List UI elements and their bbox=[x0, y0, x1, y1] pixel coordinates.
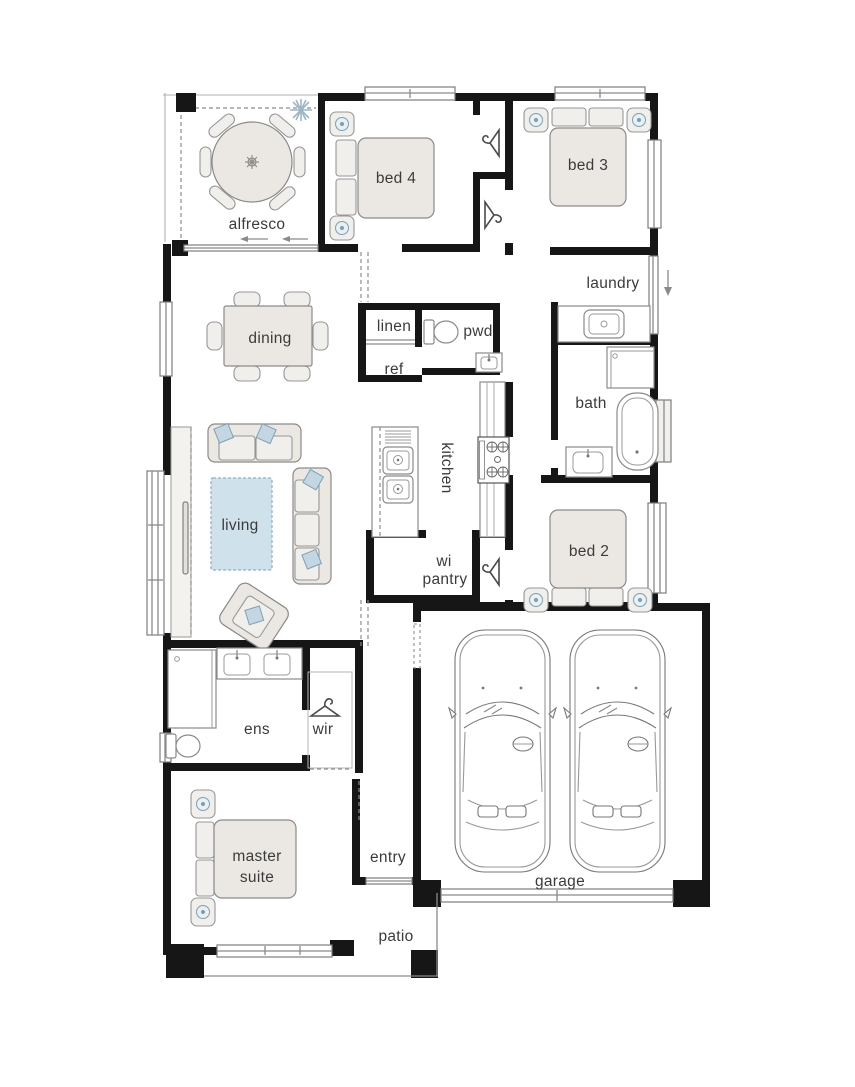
label-entry: entry bbox=[370, 849, 406, 866]
window-bed3-right bbox=[648, 140, 661, 228]
garage-contents bbox=[449, 630, 671, 872]
label-pwd: pwd bbox=[463, 323, 492, 340]
outdoor-chair-icon bbox=[294, 147, 305, 177]
label-wir: wir bbox=[312, 721, 334, 738]
car-icon bbox=[449, 630, 556, 872]
label-bath: bath bbox=[575, 395, 606, 412]
hanger-icon bbox=[483, 130, 499, 156]
island-bench-icon bbox=[372, 427, 418, 537]
sofa-icon bbox=[208, 424, 301, 462]
toilet-icon bbox=[424, 320, 458, 344]
nightstand-icon bbox=[524, 588, 548, 612]
living-furniture bbox=[171, 424, 331, 652]
wir-shelf bbox=[308, 672, 352, 768]
entry-door bbox=[366, 878, 412, 884]
window-bed2-right bbox=[648, 503, 666, 593]
label-bed3: bed 3 bbox=[568, 157, 608, 174]
nightstand-icon bbox=[191, 898, 215, 926]
label-master-2: suite bbox=[240, 869, 274, 886]
label-patio: patio bbox=[378, 928, 413, 945]
nightstand-icon bbox=[524, 108, 548, 132]
label-ref: ref bbox=[385, 361, 404, 378]
label-garage: garage bbox=[535, 873, 585, 890]
tv-icon bbox=[183, 502, 188, 574]
toilet-icon bbox=[166, 734, 200, 758]
label-wi-pantry-2: pantry bbox=[423, 571, 468, 588]
label-laundry: laundry bbox=[587, 275, 640, 292]
garage-door bbox=[441, 889, 673, 902]
alfresco-furniture bbox=[200, 99, 312, 212]
hanger-icon bbox=[311, 699, 339, 716]
plant-icon bbox=[290, 99, 312, 121]
dining-chair-icon bbox=[234, 366, 260, 381]
label-ens: ens bbox=[244, 721, 270, 738]
ens-fixtures bbox=[166, 648, 302, 758]
bathtub-icon bbox=[617, 393, 658, 470]
linen-shelf bbox=[366, 340, 415, 344]
window-bed4-top bbox=[365, 87, 455, 100]
dining-chair-icon bbox=[207, 322, 222, 350]
nightstand-icon bbox=[191, 790, 215, 818]
label-living: living bbox=[221, 517, 258, 534]
tv-unit-icon bbox=[171, 427, 191, 637]
label-kitchen: kitchen bbox=[438, 442, 455, 493]
shower-icon bbox=[607, 347, 654, 388]
cooktop-icon bbox=[478, 437, 509, 483]
sink-icon bbox=[383, 476, 413, 503]
bath-fixtures bbox=[566, 347, 658, 477]
label-wi-pantry-1: wi bbox=[435, 553, 451, 570]
floor-plan: alfresco bed 4 bed 3 laundry dining line… bbox=[0, 0, 855, 1087]
dining-chair-icon bbox=[284, 366, 310, 381]
nightstand-icon bbox=[628, 588, 652, 612]
laundry-fixtures bbox=[558, 306, 650, 342]
sink-icon bbox=[383, 447, 413, 474]
sliding-door-laundry bbox=[649, 256, 672, 334]
shower-icon bbox=[168, 650, 216, 728]
floor-plan-svg: alfresco bed 4 bed 3 laundry dining line… bbox=[0, 0, 855, 1087]
label-linen: linen bbox=[377, 318, 411, 335]
nightstand-icon bbox=[330, 112, 354, 136]
garage-internal-door bbox=[414, 624, 420, 668]
window-dining-left bbox=[160, 302, 172, 376]
nightstand-icon bbox=[627, 108, 651, 132]
basin-icon bbox=[476, 353, 502, 372]
label-bed4: bed 4 bbox=[376, 170, 416, 187]
laundry-trough-icon bbox=[584, 310, 624, 338]
dining-chair-icon bbox=[284, 292, 310, 307]
window-master-bottom bbox=[217, 945, 332, 957]
window-living-left bbox=[147, 471, 164, 635]
vanity-icon bbox=[217, 648, 302, 679]
label-master-1: master bbox=[232, 848, 281, 865]
sofa-icon bbox=[293, 468, 331, 584]
label-bed2: bed 2 bbox=[569, 543, 609, 560]
hanger-icon bbox=[483, 559, 499, 585]
label-alfresco: alfresco bbox=[229, 216, 286, 233]
wir-fixtures bbox=[308, 672, 352, 768]
nightstand-icon bbox=[330, 216, 354, 240]
hanger-icon bbox=[485, 202, 501, 228]
dining-chair-icon bbox=[234, 292, 260, 307]
sliding-door-alfresco bbox=[184, 236, 318, 251]
dining-chair-icon bbox=[313, 322, 328, 350]
label-dining: dining bbox=[248, 330, 291, 347]
table-centerpiece-icon bbox=[245, 155, 259, 169]
outdoor-chair-icon bbox=[200, 147, 211, 177]
vanity-icon bbox=[566, 447, 612, 477]
car-icon bbox=[564, 630, 671, 872]
window-bed3-top bbox=[555, 87, 645, 100]
